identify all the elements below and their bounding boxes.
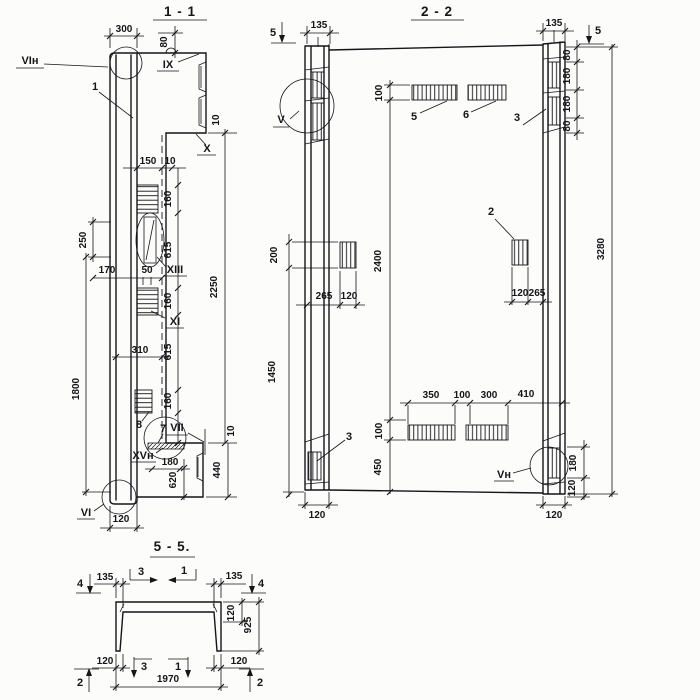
dim-180-b: 180 <box>562 95 573 112</box>
dim-100-mid: 100 <box>454 390 471 401</box>
section-arrow-3-bottom <box>131 670 137 678</box>
mark-4-left: 4 <box>77 578 84 590</box>
section-arrow-3-top <box>150 577 158 583</box>
dim-10-vii: 10 <box>226 425 237 437</box>
corner-chamfer-marks <box>120 604 217 612</box>
dim-120-rb: 120 <box>567 479 578 496</box>
dim-80-b: 80 <box>562 120 573 132</box>
callout-3-bottom: 3 <box>346 431 352 443</box>
callout-8: 8 <box>136 419 142 431</box>
section2-title: 2 - 2 <box>421 4 453 19</box>
embed-plate-7 <box>148 443 184 449</box>
callout-vn: Vн <box>497 469 511 481</box>
mark-5-left: 5 <box>270 27 276 39</box>
callout-x: X <box>203 143 211 155</box>
callout-v: V <box>277 114 285 126</box>
section-2-2: 2 - 2 5 5 135 135 V 3 80 180 180 80 3280… <box>267 4 618 521</box>
dim-100-bottom: 100 <box>374 422 385 439</box>
dim-615-a: 615 <box>163 241 174 258</box>
dim-10-x: 10 <box>211 114 222 126</box>
dim-180-a: 180 <box>562 67 573 84</box>
dim-10-rib: 10 <box>164 156 176 167</box>
section1-flange-bar <box>110 53 137 504</box>
callout-xi: XI <box>170 316 180 328</box>
mark-1-top: 1 <box>181 565 187 577</box>
dim-80-a: 80 <box>562 49 573 61</box>
dim-120-right: 120 <box>512 288 529 299</box>
callout-1: 1 <box>92 81 98 93</box>
right-post-hatch-2 <box>548 97 560 125</box>
mark-3-bottom: 3 <box>141 661 147 673</box>
right-post-hatch-1 <box>548 62 560 88</box>
dim-80: 80 <box>159 36 170 48</box>
left-post-hatch-1 <box>311 72 324 98</box>
dim-135-left: 135 <box>97 572 114 583</box>
dim-160-c: 160 <box>163 392 174 409</box>
hatch-zone-3 <box>135 390 152 413</box>
dim-120-post-left: 120 <box>309 510 326 521</box>
section-arrow-5-left <box>279 35 285 43</box>
dim-200: 200 <box>269 246 280 263</box>
dim-1800: 1800 <box>71 377 82 400</box>
callout-xv: XVн <box>132 450 153 462</box>
lifting-loop <box>166 48 176 53</box>
callout-7: 7 <box>160 423 166 435</box>
dim-170: 170 <box>99 265 116 276</box>
dim-615-b: 615 <box>163 343 174 360</box>
section-arrow-5-right <box>586 36 592 44</box>
dim-180: 180 <box>162 457 179 468</box>
callout-6: 6 <box>463 109 469 121</box>
callout-ix: IX <box>163 59 174 71</box>
detail-circle-v <box>280 79 334 133</box>
callout-5: 5 <box>411 111 417 123</box>
slot-diagonal <box>146 220 154 260</box>
mark-5-right: 5 <box>595 25 601 37</box>
mid-square-2 <box>512 240 528 265</box>
dim-265-right: 265 <box>529 288 546 299</box>
section-1-1: 1 - 1 300 80 VIн 1 IX X 10 150 10 160 61… <box>16 4 237 532</box>
drawing-sheet: 1 - 1 300 80 VIн 1 IX X 10 150 10 160 61… <box>0 0 700 700</box>
channel-outline <box>116 602 221 651</box>
callout-vii: VII <box>170 422 183 434</box>
mark-4-right: 4 <box>258 578 265 590</box>
left-post-hatch-2 <box>311 103 324 140</box>
dim-180-rb: 180 <box>568 454 579 471</box>
dim-925: 925 <box>243 616 254 633</box>
dim-250: 250 <box>78 231 89 248</box>
hatch-zone-2 <box>137 288 158 315</box>
dim-450: 450 <box>373 458 384 475</box>
top-bar-6 <box>468 85 506 100</box>
mark-2-right: 2 <box>257 677 263 689</box>
callout-vi-top: VIн <box>21 55 38 67</box>
dim-1450: 1450 <box>267 360 278 383</box>
dim-1970: 1970 <box>157 674 180 685</box>
dim-350: 350 <box>423 390 440 401</box>
dim-135-right: 135 <box>226 571 243 582</box>
section5-title: 5 - 5. <box>154 539 191 554</box>
dim-410: 410 <box>518 389 535 400</box>
callout-2: 2 <box>488 206 494 218</box>
mid-square-left <box>340 242 356 268</box>
mark-2-left: 2 <box>77 677 83 689</box>
dim-50: 50 <box>141 265 153 276</box>
dim-2250: 2250 <box>209 275 220 298</box>
bottom-bar-b <box>466 425 508 440</box>
dim-100-top: 100 <box>374 84 385 101</box>
dim-120-bottom-right: 120 <box>231 656 248 667</box>
dim-120-bottom: 120 <box>113 514 130 525</box>
dim-3280: 3280 <box>596 237 607 260</box>
dim-135-left: 135 <box>311 20 328 31</box>
dim-120-top-right: 120 <box>226 604 237 621</box>
dim-620: 620 <box>168 471 179 488</box>
dim-150: 150 <box>140 156 157 167</box>
technical-drawing: 1 - 1 300 80 VIн 1 IX X 10 150 10 160 61… <box>0 0 700 700</box>
section-5-5: 5 - 5. 4 135 3 1 135 4 120 925 120 3 1 1… <box>74 539 266 692</box>
callout-3-top: 3 <box>514 112 520 124</box>
section-arrow-1-top <box>168 577 176 583</box>
shear-key-grooves <box>197 62 206 481</box>
dim-265-left: 265 <box>316 291 333 302</box>
bottom-bar-a <box>408 425 455 440</box>
dim-120-post-right: 120 <box>546 510 563 521</box>
mark-1-bottom: 1 <box>175 661 181 673</box>
dim-160-a: 160 <box>163 190 174 207</box>
dim-310: 310 <box>132 345 149 356</box>
section-arrow-1-bottom <box>185 670 191 678</box>
top-bar-5 <box>412 85 457 100</box>
section1-outline <box>110 53 206 497</box>
dim-2400: 2400 <box>373 249 384 272</box>
dim-160-b: 160 <box>163 292 174 309</box>
right-post-hatch-bottom <box>548 448 560 478</box>
dim-120-left: 120 <box>341 291 358 302</box>
dim-300: 300 <box>481 390 498 401</box>
callout-vi-bottom: VI <box>81 507 91 519</box>
dim-440: 440 <box>212 461 223 478</box>
dim-300: 300 <box>116 24 133 35</box>
hatch-zone-1 <box>137 185 158 213</box>
left-post-hatch-bottom <box>308 452 321 480</box>
dim-135-right: 135 <box>546 18 563 29</box>
dim-120-bottom-left: 120 <box>97 656 114 667</box>
section1-title: 1 - 1 <box>164 4 196 19</box>
mark-3-top: 3 <box>138 566 144 578</box>
callout-xiii: XIII <box>167 264 184 276</box>
post-division-lines <box>305 57 565 484</box>
